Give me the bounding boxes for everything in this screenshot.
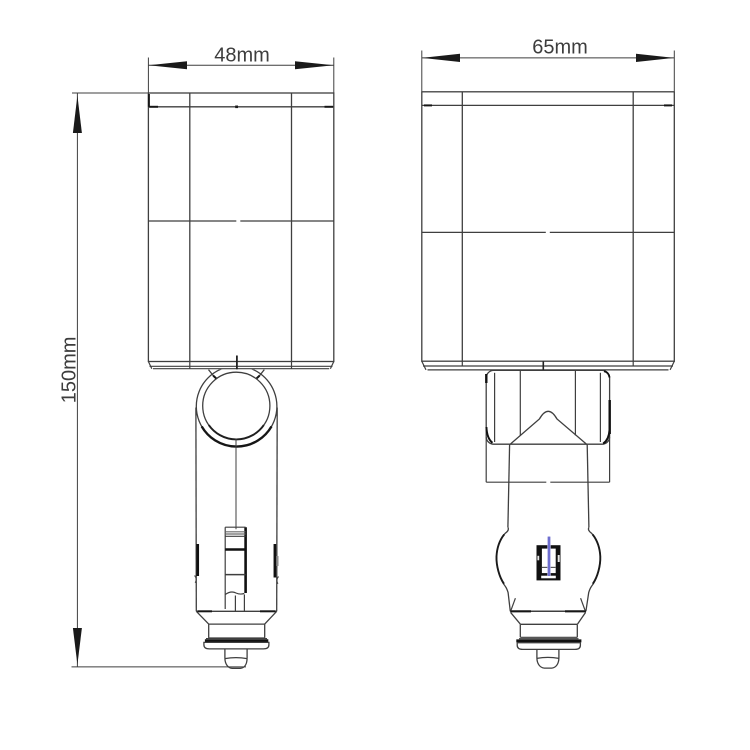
svg-text:65mm: 65mm	[532, 37, 588, 59]
svg-text:48mm: 48mm	[214, 45, 270, 67]
